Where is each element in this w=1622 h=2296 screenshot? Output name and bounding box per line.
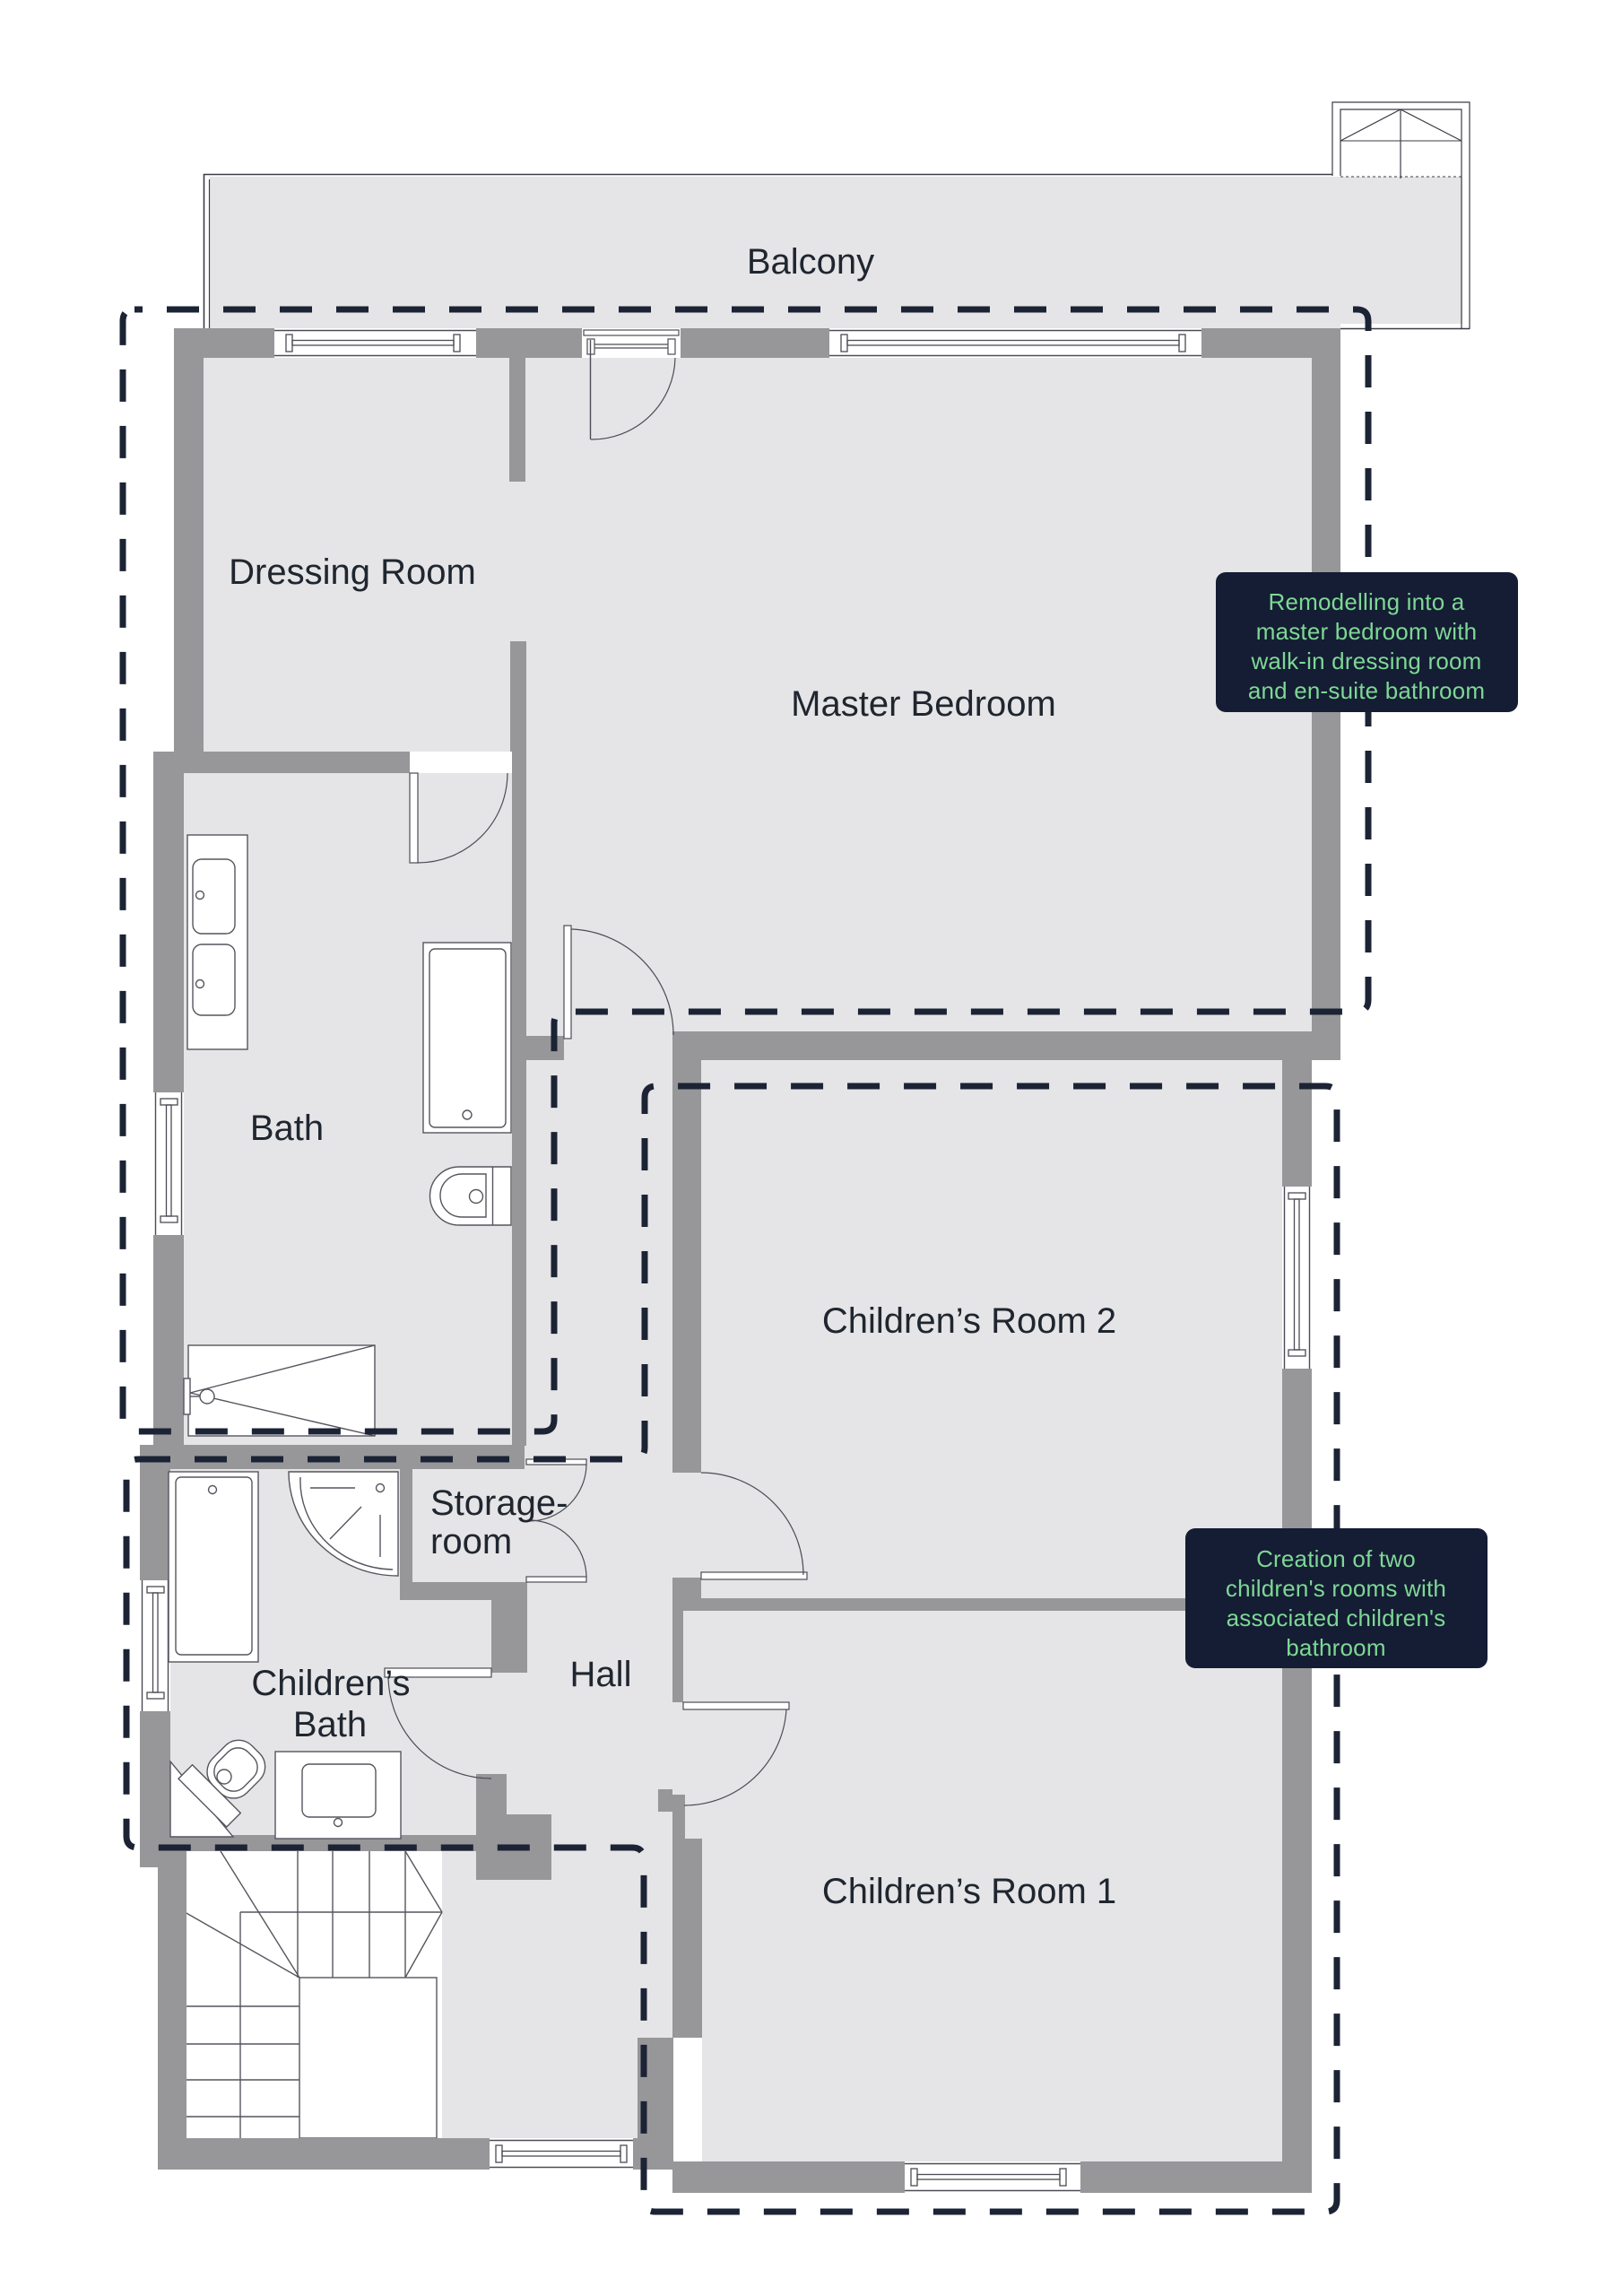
svg-text:Master Bedroom: Master Bedroom (791, 684, 1056, 724)
svg-text:Children’s Room 2: Children’s Room 2 (822, 1301, 1116, 1341)
svg-text:Children’s Room 1: Children’s Room 1 (822, 1872, 1116, 1911)
svg-text:room: room (430, 1522, 512, 1561)
svg-text:master bedroom with: master bedroom with (1256, 618, 1478, 645)
svg-text:children's rooms with: children's rooms with (1226, 1575, 1446, 1602)
svg-text:Dressing Room: Dressing Room (229, 552, 476, 592)
svg-text:Children’s: Children’s (251, 1664, 410, 1703)
svg-text:walk-in dressing room: walk-in dressing room (1250, 648, 1481, 674)
svg-text:Bath: Bath (250, 1109, 324, 1148)
svg-text:Hall: Hall (570, 1655, 632, 1694)
svg-text:and en-suite bathroom: and en-suite bathroom (1248, 677, 1485, 704)
svg-text:Bath: Bath (293, 1705, 367, 1744)
svg-text:Remodelling into a: Remodelling into a (1269, 588, 1465, 615)
svg-text:Storage-: Storage- (430, 1483, 568, 1523)
svg-text:associated children's: associated children's (1227, 1605, 1446, 1631)
svg-text:Creation of two: Creation of two (1256, 1545, 1416, 1572)
svg-text:bathroom: bathroom (1286, 1634, 1385, 1661)
svg-text:Balcony: Balcony (747, 242, 874, 282)
